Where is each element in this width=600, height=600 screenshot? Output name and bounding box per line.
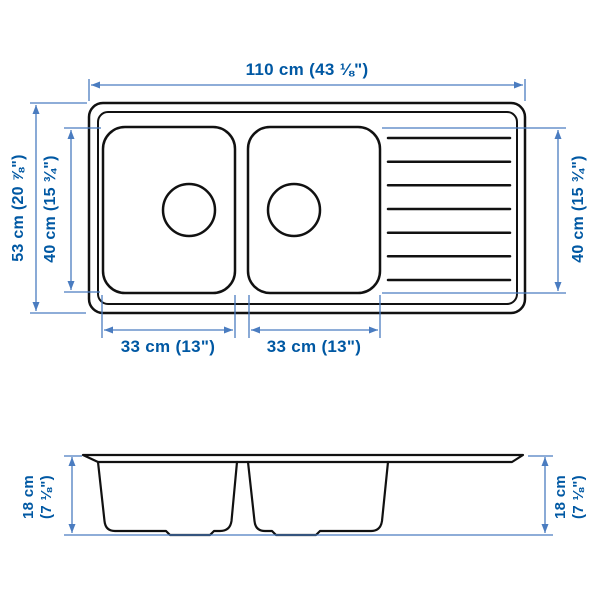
dim-label-height-left-cm: 18 cm [20,457,38,537]
left-drain-hole [163,184,215,236]
sink-dimension-diagram: 110 cm (43 ⅛") 53 cm (20 ⅞") 40 cm (15 ¾… [0,0,600,600]
dim-label-height-right: 18 cm (7 ⅛") [552,457,592,537]
dim-label-overall-depth: 53 cm (20 ⅞") [10,108,30,308]
dim-label-bowl-depth-right: 40 cm (15 ¾") [570,109,590,309]
side-profile-counter [83,455,523,462]
diagram-line-art [0,0,600,600]
dim-label-bowl-width-left: 33 cm (13") [93,337,243,357]
side-profile-right-bowl [248,462,388,535]
side-view [83,455,523,535]
dim-label-top-width: 110 cm (43 ⅛") [157,60,457,80]
top-view [89,103,525,313]
dim-label-bowl-width-right: 33 cm (13") [239,337,389,357]
right-drain-hole [268,184,320,236]
dimension-lines [30,79,566,535]
dim-label-height-right-cm: 18 cm [552,457,570,537]
dim-label-height-right-inch: (7 ⅛") [570,457,588,537]
dim-label-bowl-depth-left: 40 cm (15 ¾") [42,109,62,309]
dim-label-height-left: 18 cm (7 ⅛") [20,457,60,537]
drainboard-ridges [388,138,510,280]
side-profile-left-bowl [98,462,237,535]
dim-label-height-left-inch: (7 ⅛") [38,457,56,537]
